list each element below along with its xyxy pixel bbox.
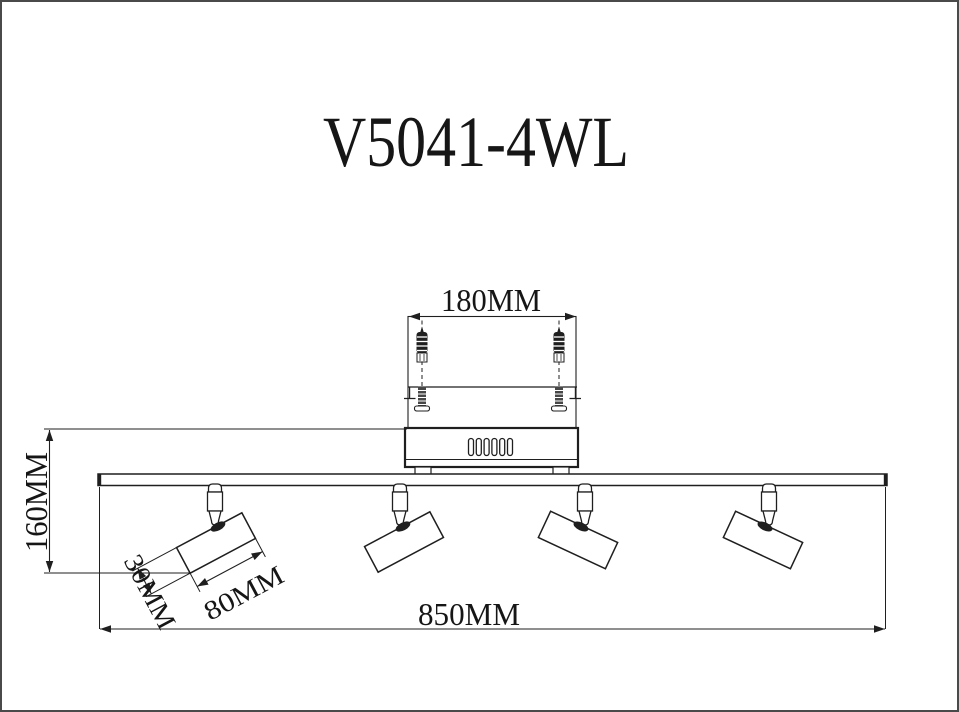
dim-30mm-label: 30MM <box>118 549 182 634</box>
spotlight-head <box>723 511 802 569</box>
swivel-stem <box>578 484 593 525</box>
fixture-dimension-diagram: V5041-4WL <box>0 0 959 712</box>
product-code-title: V5041-4WL <box>323 102 629 182</box>
dim-850mm-label: 850MM <box>418 596 520 632</box>
canopy <box>405 428 578 475</box>
mounting-plate-outline <box>408 317 576 429</box>
dimension-30mm: 30MM <box>118 548 190 635</box>
technical-drawing-page: V5041-4WL <box>0 0 959 712</box>
swivel-stem <box>762 484 777 525</box>
swivel-stem <box>393 484 408 525</box>
dim-80mm-label: 80MM <box>199 560 289 627</box>
track-bar-left-cap <box>98 474 101 486</box>
dimension-180mm: 180MM <box>409 282 576 318</box>
mounting-template <box>404 317 581 429</box>
wall-anchor-screw-left <box>415 321 430 412</box>
spotlight-head <box>538 511 617 569</box>
wall-anchor-screw-right <box>552 321 567 412</box>
swivel-stem <box>208 484 223 525</box>
spotlight-3 <box>538 484 617 569</box>
track-bar-right-cap <box>884 474 887 486</box>
spotlight-2 <box>365 484 444 572</box>
mounting-strip <box>404 387 581 399</box>
spotlight-4 <box>723 484 802 569</box>
dim-160mm-label: 160MM <box>18 452 54 552</box>
spotlight-1 <box>177 484 256 573</box>
dim-180mm-label: 180MM <box>441 282 541 318</box>
